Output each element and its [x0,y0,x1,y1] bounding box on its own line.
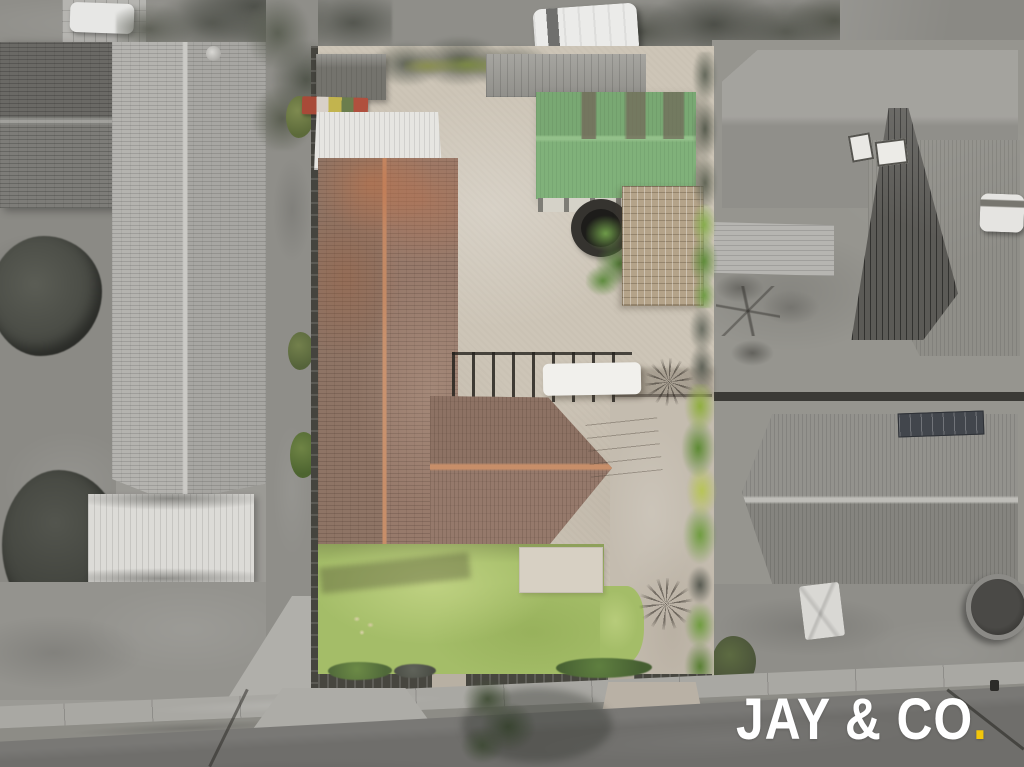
right-house2-roof [742,414,1018,584]
front-lawn-bulge [600,586,644,664]
right-mid-fence [712,392,1024,401]
solar-panels [898,411,985,438]
rear-shed-roof [486,54,646,97]
green-shed-roof [536,92,696,199]
skylight-2 [875,138,909,167]
trampoline [966,574,1024,640]
left-house-roof-main [112,42,266,502]
palm-shadow-2 [638,578,694,630]
left-house-roof-dark-wing [0,42,122,208]
shed-skylight-streaks [536,92,696,139]
garden-shed-gray [316,54,386,100]
right-hedge-green-1 [690,204,718,308]
power-pole [990,680,999,691]
right-hedge-top [692,52,718,206]
aerial-photo: JAY & CO. [0,0,1024,767]
clothesline-subject [585,416,662,477]
left-front-yard [0,582,268,700]
brand-watermark: JAY & CO. [736,691,988,749]
skylight-1 [848,132,874,162]
lawn-flower-patch [350,610,384,640]
satellite-dish [206,46,221,61]
brand-text: JAY & CO [736,691,973,749]
concrete-patio-pad [519,547,603,593]
left-garage-roof-white [88,494,254,582]
street-tree-canopy [446,676,550,767]
palm-shadow-1 [644,358,694,406]
right-clothesline [716,286,780,336]
white-caravan [543,362,642,396]
parked-vehicle-right [979,193,1024,233]
white-tarp [799,582,845,640]
right-hedge-bright [682,384,718,568]
brand-dot: . [973,691,988,749]
